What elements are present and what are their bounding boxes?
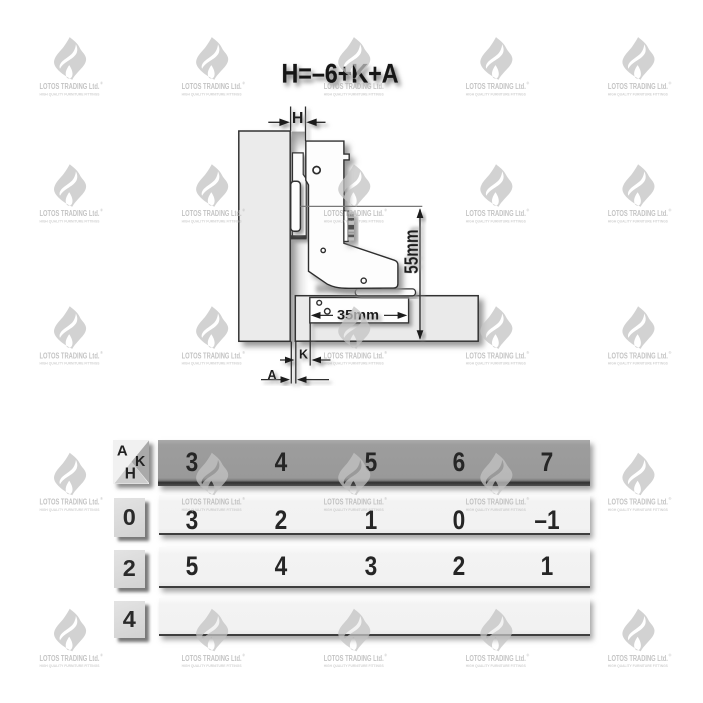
svg-text:K: K: [135, 454, 146, 470]
svg-text:H: H: [124, 466, 135, 483]
svg-text:35mm: 35mm: [337, 307, 379, 322]
svg-text:55mm: 55mm: [402, 229, 423, 273]
svg-text:H: H: [292, 110, 304, 127]
svg-text:K: K: [299, 348, 308, 362]
svg-text:A: A: [267, 368, 276, 382]
svg-text:H=–6+K+A: H=–6+K+A: [282, 59, 399, 89]
svg-text:A: A: [116, 443, 127, 460]
